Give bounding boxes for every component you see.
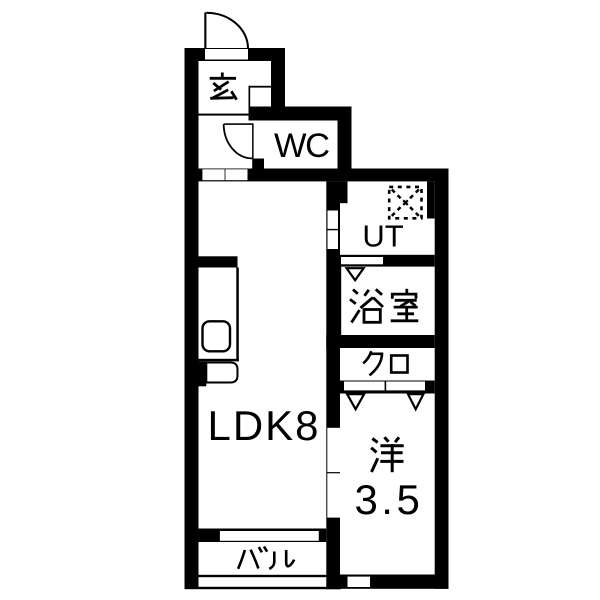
svg-text:WC: WC — [274, 127, 329, 165]
svg-text:UT: UT — [362, 219, 403, 254]
svg-text:3.5: 3.5 — [354, 476, 423, 523]
svg-text:LDK8: LDK8 — [207, 402, 320, 449]
